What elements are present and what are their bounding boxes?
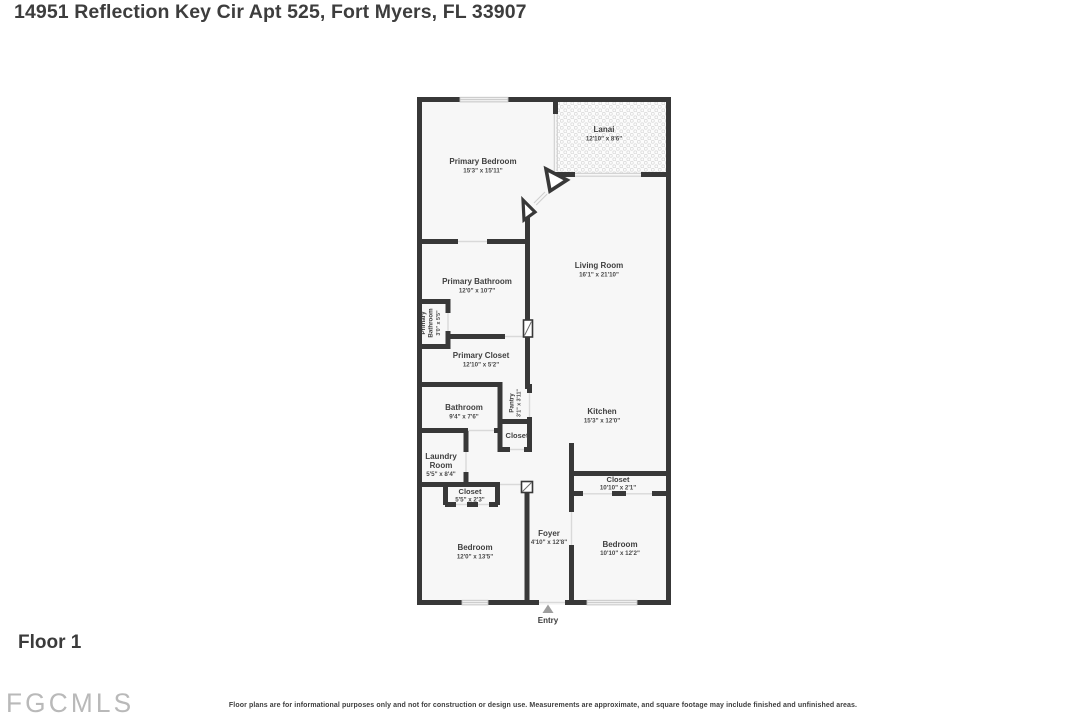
room-label-primary-bathroom: Primary Bathroom (442, 277, 512, 286)
room-label-primary-bathroom-small: Primary Bathroom 3'0" x 5'5" (420, 308, 442, 338)
room-label-bedroom2-closet: Closet (607, 475, 630, 484)
room-dims-primary-bedroom: 15'3" x 15'11" (463, 168, 503, 175)
svg-text:3'1" x 3'11": 3'1" x 3'11" (517, 389, 523, 417)
room-dims-bathroom: 9'4" x 7'6" (449, 414, 479, 421)
room-dims-closet-small: 5'5" x 2'3" (455, 497, 485, 504)
room-label-foyer: Foyer (538, 529, 560, 538)
room-dims-lanai: 12'10" x 8'6" (586, 136, 622, 143)
room-label-bedroom-left: Bedroom (457, 543, 492, 552)
room-dims-kitchen: 15'3" x 12'0" (584, 418, 620, 425)
disclaimer: Floor plans are for informational purpos… (0, 702, 1086, 709)
room-label-primary-bedroom: Primary Bedroom (449, 157, 516, 166)
room-label-primary-closet: Primary Closet (453, 351, 510, 360)
entry-arrow-icon (543, 605, 554, 614)
room-label-laundry-line1: Laundry (425, 452, 457, 461)
svg-text:Bathroom: Bathroom (428, 308, 435, 338)
room-dims-laundry: 5'5" x 8'4" (426, 471, 456, 478)
room-label-laundry-line2: Room (430, 461, 453, 470)
room-label-bathroom: Bathroom (445, 403, 483, 412)
room-label-lanai: Lanai (594, 125, 615, 134)
room-label-hall-closet: Closet (506, 431, 529, 440)
room-dims-bedroom-right: 10'10" x 12'2" (600, 550, 640, 557)
entry-label: Entry (538, 616, 559, 625)
floor-plan: Primary Bedroom 15'3" x 15'11" Lanai 12'… (0, 0, 1086, 724)
room-label-living-room: Living Room (575, 261, 623, 270)
room-dims-bedroom2-closet: 10'10" x 2'1" (600, 485, 636, 492)
svg-text:3'0" x 5'5": 3'0" x 5'5" (436, 310, 442, 336)
room-dims-living-room: 16'1" x 21'10" (579, 272, 619, 279)
room-dims-primary-bathroom: 12'0" x 10'7" (459, 288, 495, 295)
room-dims-bedroom-left: 12'0" x 13'5" (457, 554, 493, 561)
svg-text:Pantry: Pantry (509, 393, 516, 413)
floor-label: Floor 1 (18, 632, 81, 654)
room-label-closet-small: Closet (459, 487, 482, 496)
room-label-bedroom-right: Bedroom (602, 540, 637, 549)
room-dims-primary-closet: 12'10" x 5'2" (463, 362, 499, 369)
room-dims-foyer: 4'10" x 12'8" (531, 539, 567, 546)
svg-text:Primary: Primary (420, 311, 427, 335)
room-label-kitchen: Kitchen (587, 407, 616, 416)
